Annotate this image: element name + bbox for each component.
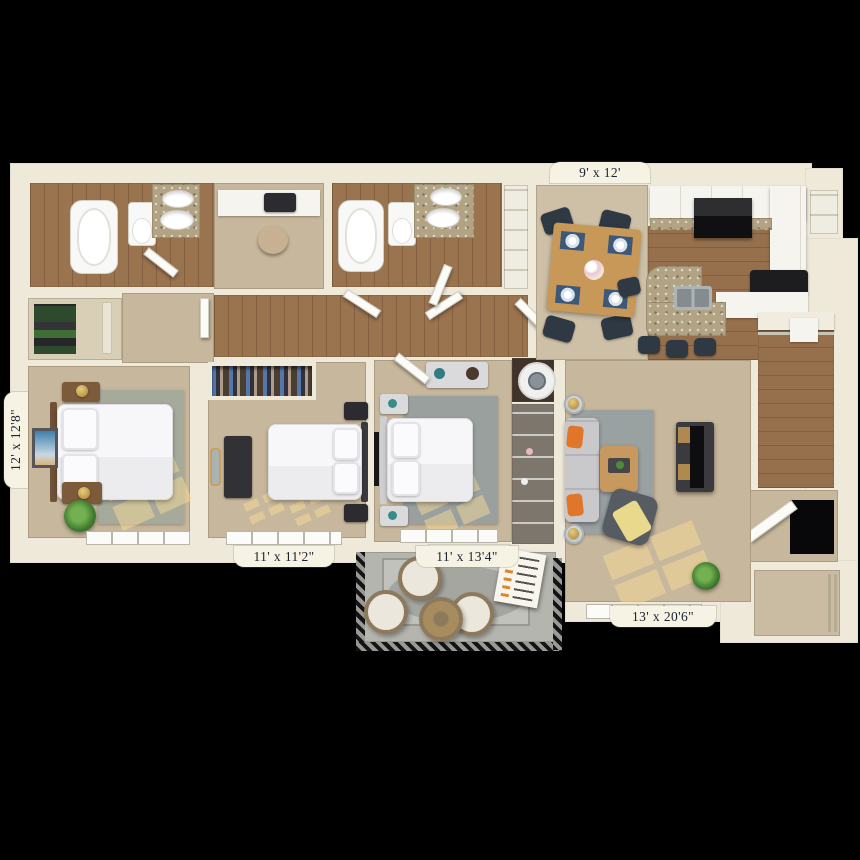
dimension-label-bedroom-2: 11' x 11'2" — [234, 546, 334, 567]
patio-railing-right — [553, 558, 562, 650]
patio-table — [419, 597, 463, 641]
dimension-label-dining: 9' x 12' — [550, 162, 650, 183]
folded-clothes — [34, 304, 76, 354]
living-plant — [692, 562, 720, 590]
closet-box — [790, 318, 818, 342]
bar-stool-3 — [666, 340, 688, 358]
floor-lamp-1 — [568, 398, 579, 409]
dresser-hat — [466, 367, 479, 380]
dining-table — [546, 222, 641, 317]
washer — [518, 362, 556, 400]
kitchen-right-cabinets — [770, 186, 806, 274]
bedroom-2-window — [226, 531, 342, 545]
bathtub-1 — [70, 200, 118, 274]
closet-shelf — [102, 302, 112, 354]
closet-item-white — [521, 478, 528, 485]
master-pillow-1 — [62, 408, 98, 450]
floor-lamp-2 — [568, 528, 579, 539]
door-den — [200, 298, 209, 338]
console-drawer-2 — [678, 464, 690, 480]
bedroom-2-mirror — [210, 448, 221, 486]
tray-plant — [616, 461, 624, 469]
dimension-label-master-bedroom: 12' x 12'8" — [4, 392, 28, 488]
linen-closet — [504, 185, 528, 289]
printer — [264, 193, 296, 212]
range — [694, 198, 752, 238]
console-drawer-1 — [678, 427, 690, 443]
papers-text-lines — [512, 557, 539, 602]
bathtub-2 — [338, 200, 384, 272]
bedroom-3-window — [400, 529, 498, 543]
office-chair — [258, 226, 288, 254]
centerpiece-flowers — [583, 259, 605, 281]
dimension-label-bedroom-3: 11' x 13'4" — [416, 546, 518, 567]
dresser-bowl — [434, 368, 445, 379]
sink-2a — [430, 188, 462, 206]
patio-railing-bottom — [356, 642, 562, 651]
kitchen-sink — [674, 286, 712, 310]
sink-1b — [160, 210, 194, 230]
bedroom-2-closet — [208, 362, 316, 400]
patio-railing-left — [356, 552, 365, 650]
dimension-label-living-room: 13' x 20'6" — [610, 606, 716, 627]
bedroom-3-pillow-2 — [392, 460, 420, 496]
nightstand-decor-1 — [388, 399, 397, 408]
bedroom-2-headboard — [361, 422, 368, 502]
wall-tv — [374, 432, 379, 486]
sofa-pillow-1 — [566, 425, 584, 449]
bar-stool-2 — [638, 336, 660, 354]
bedroom-3-pillow-1 — [392, 422, 420, 458]
bedroom-3-headboard — [380, 416, 387, 504]
bedroom-3-walkin-closet — [512, 404, 554, 544]
sink-2b — [426, 208, 460, 228]
master-lamp-1 — [76, 385, 88, 397]
floor-plan-image: 9' x 12' 12' x 12'8" 11' x 11'2" 11' x 1… — [0, 0, 860, 860]
tv-screen — [690, 426, 704, 488]
entry-closet-track-2 — [834, 574, 837, 632]
closet-item-pink — [526, 448, 533, 455]
master-plant — [64, 500, 96, 532]
bedroom-2-nightstand-2 — [344, 504, 368, 522]
master-window — [86, 531, 190, 545]
nightstand-decor-2 — [388, 511, 397, 520]
toilet-2 — [388, 202, 416, 246]
bar-stool-4 — [694, 338, 716, 356]
bedroom-2-nightstand-1 — [344, 402, 368, 420]
wall-art — [32, 428, 58, 468]
master-lamp-2 — [78, 487, 90, 499]
sofa-pillow-2 — [566, 493, 584, 517]
entry-closet-track-1 — [828, 574, 831, 632]
bedroom-2-pillow-1 — [333, 428, 359, 460]
bedroom-2-dresser — [224, 436, 252, 498]
pantry — [810, 190, 838, 234]
sink-1a — [162, 190, 194, 208]
patio-chair-2 — [364, 590, 408, 634]
bedroom-2-pillow-2 — [333, 462, 359, 494]
